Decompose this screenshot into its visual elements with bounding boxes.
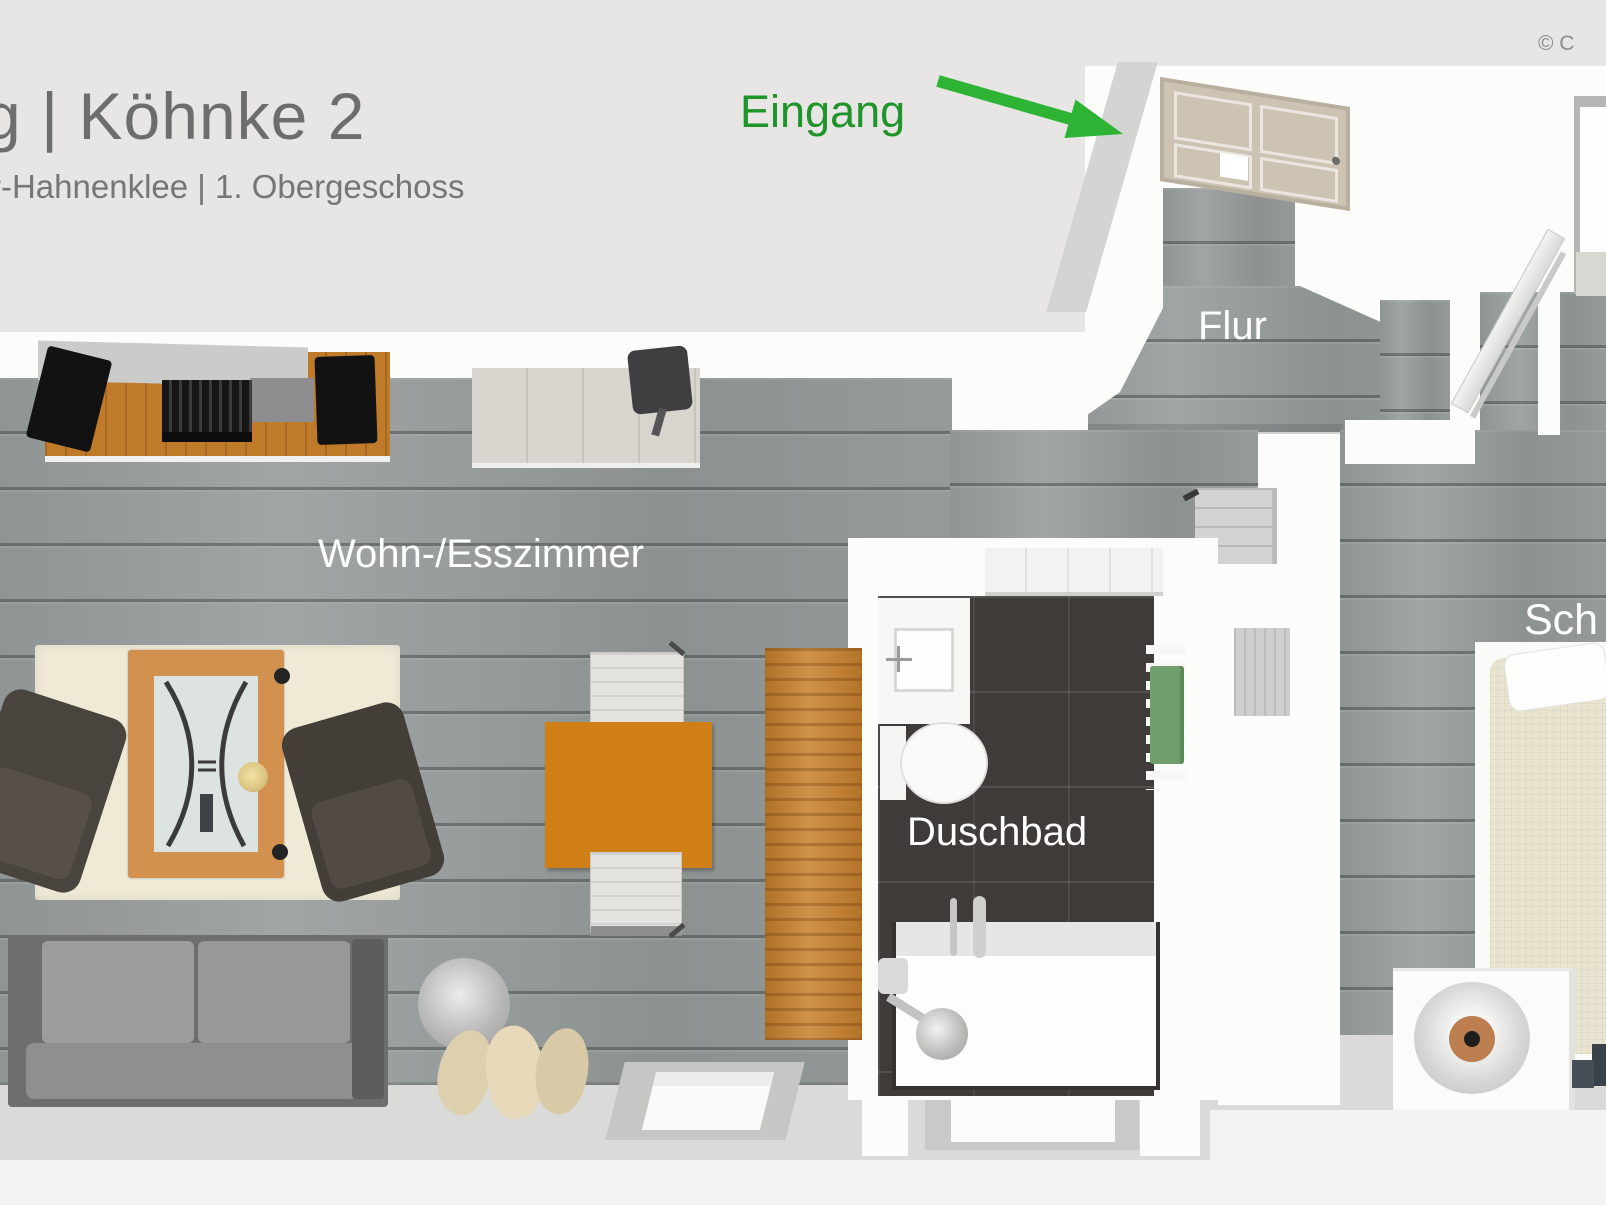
coffee-table <box>128 650 284 878</box>
skylight-living <box>605 1062 804 1140</box>
shower-valve <box>878 958 908 994</box>
toilet-bowl <box>900 722 988 804</box>
doorway-lintel-corridor <box>1345 420 1475 464</box>
nightstand-lamp-center <box>1464 1031 1480 1047</box>
entrance-arrow-icon <box>928 66 1128 151</box>
shelf-decor <box>1576 252 1606 296</box>
towel-green <box>1150 666 1184 764</box>
sofa-seat <box>26 1043 358 1099</box>
sofa-armrest-right <box>352 939 384 1099</box>
bathroom-top-shelf <box>985 548 1163 596</box>
door-panel <box>1260 105 1338 165</box>
long-wood-table <box>765 648 862 1040</box>
room-label-flur: Flur <box>1198 304 1267 349</box>
door-panel <box>1174 91 1252 151</box>
media-receiver <box>250 378 314 422</box>
speaker-right <box>314 355 377 445</box>
armchair-right-seat <box>309 776 434 891</box>
room-label-wohn-esszimmer: Wohn-/Esszimmer <box>318 532 644 577</box>
room-label-duschbad: Duschbad <box>907 810 1087 855</box>
dining-table <box>545 722 712 868</box>
hall-radiator <box>1234 628 1290 716</box>
armchair-left-seat <box>0 764 95 882</box>
hall-floor-right-patch <box>1380 300 1450 432</box>
wall-living-hall-column <box>948 332 1088 432</box>
page-title: g | Köhnke 2 <box>0 78 365 154</box>
bathroom-wall-stub-right <box>1140 1100 1200 1156</box>
door-glass-slot <box>1220 152 1248 180</box>
entrance-label: Eingang <box>740 86 905 138</box>
room-label-schlafzimmer-fragment: Sch <box>1524 596 1598 645</box>
shower-handle <box>973 896 986 958</box>
coffee-table-knob-top <box>274 668 290 684</box>
nightstand-shadow-piece <box>1572 1060 1594 1088</box>
page-subtitle: r-Hahnenklee | 1. Obergeschoss <box>0 168 465 206</box>
bathroom-wall-stub-left <box>862 1100 908 1156</box>
shower-tray-top-band <box>896 922 1156 956</box>
coffee-table-knob-bottom <box>272 844 288 860</box>
outside-band-right <box>1210 1110 1606 1205</box>
copyright-fragment: © C <box>1538 32 1574 56</box>
office-chair <box>627 345 693 415</box>
skylight-bath-glass <box>951 1098 1115 1142</box>
sofa <box>8 935 388 1107</box>
skylight-living-glass <box>642 1072 774 1130</box>
dining-chair-bottom <box>590 852 682 936</box>
shower-rod <box>950 898 957 956</box>
door-handle <box>1332 156 1340 165</box>
media-grille <box>162 380 252 442</box>
shower-tray <box>892 922 1160 1090</box>
sofa-back-cushion-left <box>42 941 194 1043</box>
coffee-table-legs <box>154 676 258 852</box>
shower-head <box>916 1008 968 1060</box>
floor-plan-canvas: g | Köhnke 2 r-Hahnenklee | 1. Obergesch… <box>0 0 1606 1205</box>
sofa-back-cushion-right <box>198 941 350 1043</box>
door-panel <box>1260 157 1338 203</box>
bed-frame-corner <box>1592 1044 1606 1086</box>
candle <box>238 762 268 792</box>
washbasin-faucet-v <box>897 646 900 672</box>
